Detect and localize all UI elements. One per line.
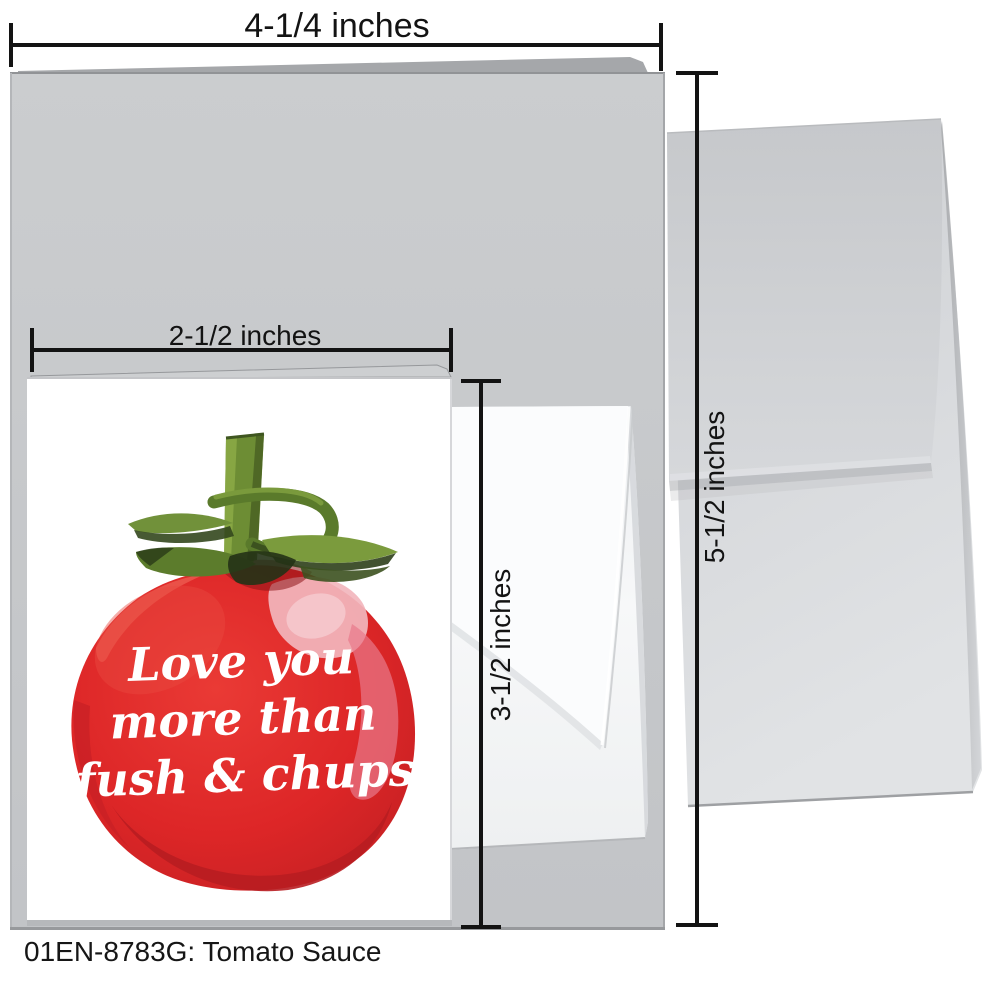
scene-graphic [0, 0, 984, 984]
dimension-cap-large-height-bottom [676, 923, 718, 927]
dimension-cap-small-height-bottom [461, 925, 501, 929]
dimension-tick-large-width-right [659, 23, 663, 71]
dimension-cap-large-height-top [676, 71, 718, 75]
dimension-label-small-height: 3-1/2 inches [487, 569, 515, 722]
product-mockup: Love you more than fush & chups 4-1/4 in… [0, 0, 984, 984]
card-message: Love you more than fush & chups [71, 627, 416, 810]
product-caption: 01EN-8783G: Tomato Sauce [24, 936, 381, 968]
dimension-cap-small-height-top [461, 379, 501, 383]
dimension-tick-small-width-right [449, 328, 453, 372]
dimension-tick-small-width-left [30, 328, 34, 372]
dimension-tick-large-width-left [9, 23, 13, 67]
dimension-label-large-width: 4-1/4 inches [244, 9, 429, 43]
card-message-line3: fush & chups [75, 741, 416, 810]
dimension-label-large-height: 5-1/2 inches [701, 411, 729, 564]
dimension-line-small-height [479, 381, 483, 928]
dimension-label-small-width: 2-1/2 inches [169, 322, 322, 350]
